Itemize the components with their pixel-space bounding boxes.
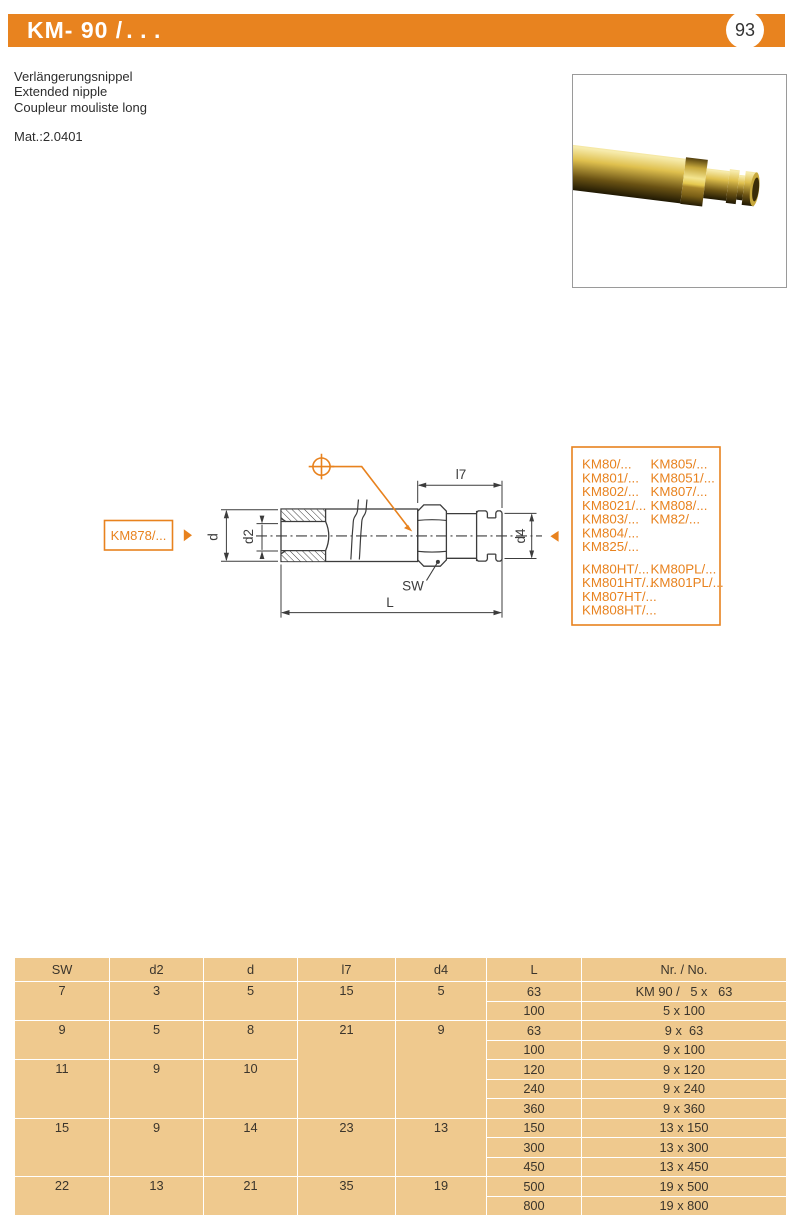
svg-text:KM802/...: KM802/... bbox=[582, 484, 639, 499]
svg-text:SW: SW bbox=[402, 579, 424, 594]
svg-text:KM805/...: KM805/... bbox=[651, 457, 708, 472]
svg-text:KM808HT/...: KM808HT/... bbox=[582, 603, 657, 618]
svg-text:d2: d2 bbox=[241, 529, 256, 544]
svg-text:KM801HT/...: KM801HT/... bbox=[582, 575, 657, 590]
svg-text:L: L bbox=[386, 595, 394, 610]
svg-text:d: d bbox=[206, 533, 221, 541]
svg-text:KM878/...: KM878/... bbox=[111, 528, 167, 543]
svg-text:KM80/...: KM80/... bbox=[582, 457, 632, 472]
svg-text:KM807/...: KM807/... bbox=[651, 484, 708, 499]
svg-text:KM825/...: KM825/... bbox=[582, 539, 639, 554]
svg-text:KM803/...: KM803/... bbox=[582, 512, 639, 527]
svg-text:KM82/...: KM82/... bbox=[651, 512, 701, 527]
svg-text:KM801PL/...: KM801PL/... bbox=[651, 575, 724, 590]
svg-text:l7: l7 bbox=[456, 467, 467, 482]
svg-text:d4: d4 bbox=[513, 528, 528, 544]
